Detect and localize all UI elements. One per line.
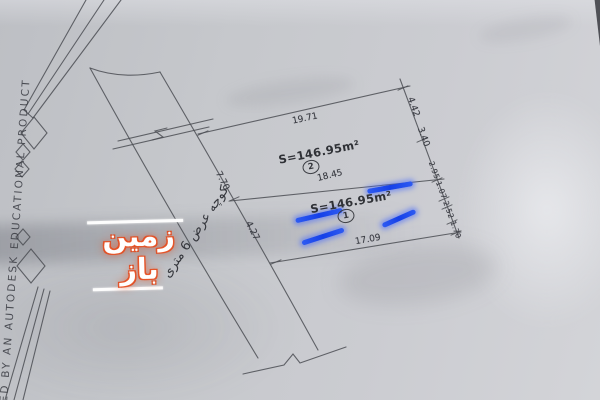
plot2-top-edge bbox=[198, 86, 410, 134]
plan-photo: ED BY AN AUTODESK EDUCATIONAL PRODUCT کو… bbox=[0, 0, 600, 400]
road-right-edge bbox=[160, 72, 318, 350]
road-left-edge bbox=[90, 68, 258, 358]
tick bbox=[198, 131, 208, 135]
border-line bbox=[14, 289, 44, 400]
plan-linework bbox=[0, 0, 600, 400]
border-line bbox=[28, 0, 104, 114]
border-line bbox=[24, 0, 86, 110]
road-bottom-break bbox=[243, 347, 346, 374]
border-line bbox=[23, 291, 50, 400]
diamond-icon bbox=[17, 249, 45, 283]
watermark-text: زمین باز bbox=[83, 218, 195, 288]
watermark-logo: زمین باز bbox=[83, 219, 195, 292]
road-top-edge bbox=[90, 68, 160, 75]
